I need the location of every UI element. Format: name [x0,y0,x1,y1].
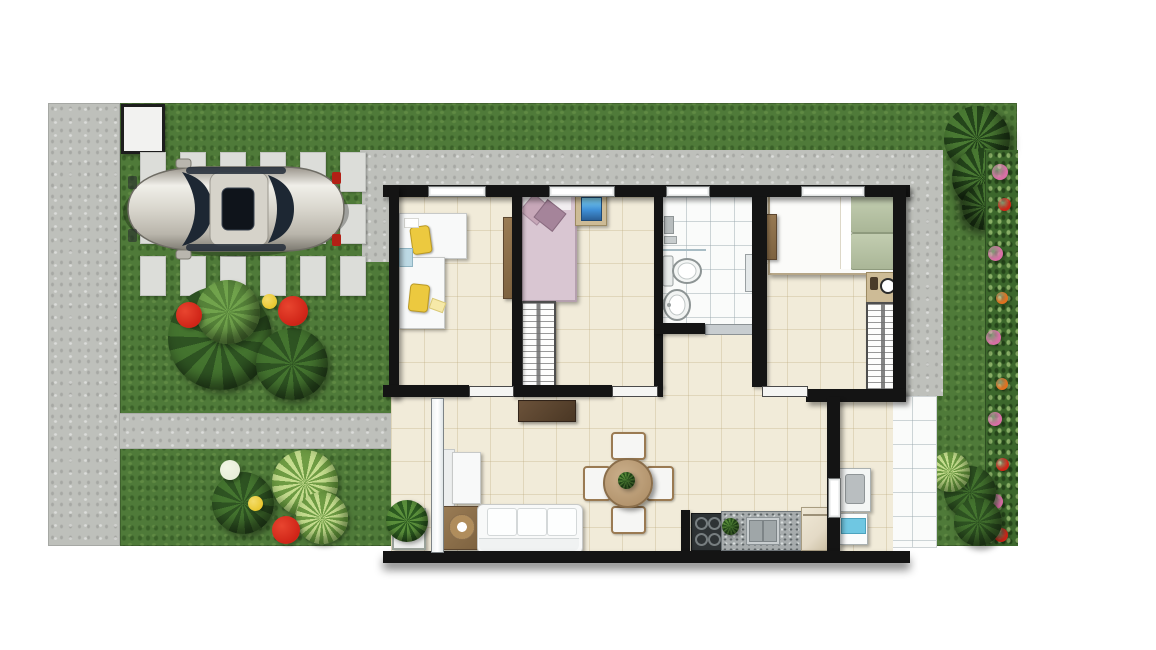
walkway-left-strip [362,150,391,262]
walkway-right [905,150,943,396]
parked-car [118,158,352,260]
decor-item [870,277,878,290]
walkway-top [360,150,943,186]
dining-chair [611,432,646,460]
flower-cluster [988,412,1002,426]
wall-corridor-b [512,385,612,397]
bed-pillow [850,233,896,270]
garden-path [120,413,391,449]
bed-sheet-fold [840,195,851,269]
side-table-tray [449,514,475,540]
driveway-paver [340,256,366,296]
wall-bedroom2-bathroom [654,197,663,387]
shower-glass-partition [662,249,706,251]
tv-sideboard [518,400,576,422]
armchair [452,452,481,504]
yellow-flowers [262,294,277,309]
sink-basin [763,520,777,542]
driveway-paver [300,256,326,296]
office-window [428,186,486,197]
flower-cluster [996,378,1008,390]
red-flowers [176,302,202,328]
tank-basin [845,474,865,504]
palm-shrub [296,492,348,544]
entry-gate [121,104,165,154]
desk-laptop [399,248,413,267]
wall-kitchen-stub [681,510,690,551]
yellow-flowers [248,496,263,511]
bedroom3-door-sill [762,386,808,397]
wall-corridor-a [383,385,469,397]
bedroom-door-leaf [766,214,777,260]
service-door [828,478,841,518]
sofa-cushion [487,508,517,536]
tv-unit [581,197,602,221]
wall-corridor-d [806,389,906,402]
bedroom3-window [801,186,865,197]
floor-plan-stage [0,0,1156,650]
sink-basin [749,520,763,542]
stove-burner [708,533,721,546]
fridge-handle [803,514,827,516]
bathroom-door-sill [705,324,755,335]
bed-pillow [850,196,896,233]
shrub [954,498,1002,546]
pedestal-sink [660,288,692,322]
stove-burner [708,517,721,530]
stove-burner [695,533,708,546]
flower-cluster [998,198,1011,211]
sofa-cushion [547,508,577,536]
shower-control [664,236,677,244]
wall-office-bedroom2 [512,197,522,387]
shrub [256,328,328,400]
red-flowers [272,516,300,544]
flower-cluster [992,164,1008,180]
sofa-cushion [517,508,547,536]
counter-plant [722,518,739,535]
wall-left [389,185,399,397]
desk-chair [408,283,431,313]
wall-living-right [827,397,840,551]
wall-right [893,185,906,396]
flower-cluster [986,330,1001,345]
wall-bathroom-bedroom3 [752,197,767,387]
driveway-paver [140,256,166,296]
office-door-sill [469,386,514,397]
wall-bathroom-bottom [654,323,705,334]
flower-cluster [996,458,1009,471]
potted-plant [386,500,428,542]
bathroom-window [666,186,710,197]
shrub [212,472,274,534]
table-centerpiece [618,472,635,489]
red-flowers [278,296,308,326]
driveway-paver [260,256,286,296]
dining-chair [611,506,646,534]
flower-cluster [988,246,1003,261]
washer-door [841,518,866,534]
wall-bottom [383,551,910,563]
bedroom2-window [549,186,615,197]
flower-cluster [996,292,1008,304]
shrub [196,280,260,344]
desk-papers [404,218,419,228]
wardrobe [521,301,556,394]
shower-fixture [664,216,674,234]
sofa-back [479,538,579,551]
bedroom2-door-sill [612,386,658,397]
front-sidewalk [48,103,120,546]
stove-burner [695,517,708,530]
toilet [662,252,704,290]
white-flowers [220,460,240,480]
porch-glass-door [431,398,444,553]
